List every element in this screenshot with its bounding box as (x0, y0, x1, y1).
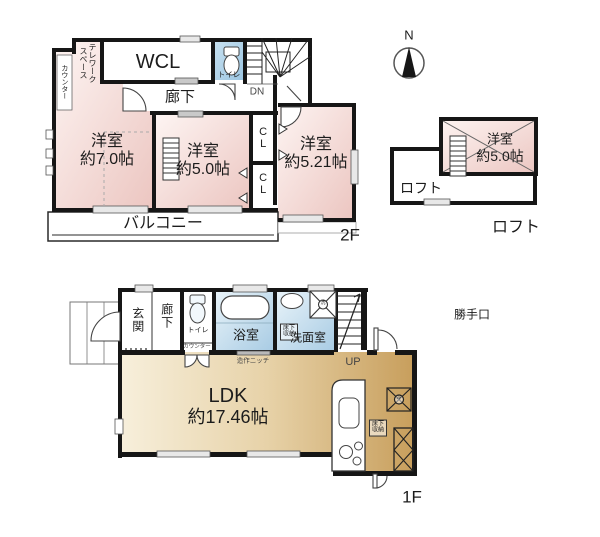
floor-plan-canvas: カウンター テレワーク スペース WCL トイレ DN 廊下 洋室 約7.0帖 … (0, 0, 600, 537)
bedroom5-name: 洋室 (187, 143, 219, 161)
loft-ladder-icon (450, 136, 466, 176)
entrance-label: 玄関 (130, 307, 143, 333)
kitchen-counter (332, 380, 365, 471)
floor-2f-label: 2F (340, 225, 360, 244)
loft-caption-label: ロフト (492, 219, 540, 237)
washer-mark-label: 洗 (320, 301, 325, 307)
underfloor-storage-kitchen-label: 床下 収納 (369, 420, 387, 437)
sink-icon (281, 294, 303, 309)
toilet-1f-label: トイレ (188, 327, 209, 335)
fridge-mark-label: 冷 (396, 396, 401, 402)
bathroom-label: 浴室 (233, 329, 259, 344)
loft-bedroom-name: 洋室 (487, 133, 513, 148)
niche-label: 造作ニッチ (237, 357, 270, 364)
telework-space-label: テレワーク スペース (78, 43, 96, 83)
closet2-label: CL (257, 172, 269, 196)
toilet-2f-label: トイレ (218, 71, 241, 79)
stairs-2f (247, 38, 311, 84)
counter-2f-label: カウンター (60, 65, 68, 100)
kitchen-sink-icon (339, 398, 359, 428)
stairs-dn-label: DN (250, 86, 264, 97)
floor-1f-label: 1F (402, 487, 422, 506)
bedroom7-name: 洋室 (91, 133, 123, 151)
bedroom521-name: 洋室 (300, 136, 332, 154)
bedroom521-size: 約5.21帖 (284, 154, 347, 172)
north-arrow-icon (394, 47, 424, 78)
compass-n-label: N (404, 29, 413, 44)
toilet-1f-icon (190, 295, 205, 323)
counter-1f-label: カウンター (183, 344, 211, 350)
balcony-label: バルコニー (123, 215, 203, 233)
stairs-up-label: UP (345, 356, 360, 368)
bedroom5-size: 約5.0帖 (176, 161, 230, 179)
washroom-label: 洗面室 (290, 331, 326, 344)
back-door-label: 勝手口 (454, 308, 490, 321)
loft-bedroom-size: 約5.0帖 (476, 149, 523, 165)
bedroom7-size: 約7.0帖 (80, 151, 134, 169)
hallway-2f-label: 廊下 (165, 90, 195, 107)
stairs-1f (337, 294, 361, 349)
hallway-1f-label: 廊下 (159, 303, 172, 329)
wcl-label: WCL (136, 51, 180, 73)
ldk-name: LDK (209, 385, 248, 407)
closet1-label: CL (257, 126, 269, 150)
built-in-niche (237, 351, 270, 355)
loft-space-label: ロフト (400, 181, 442, 197)
ldk-size: 約17.46帖 (187, 407, 268, 427)
